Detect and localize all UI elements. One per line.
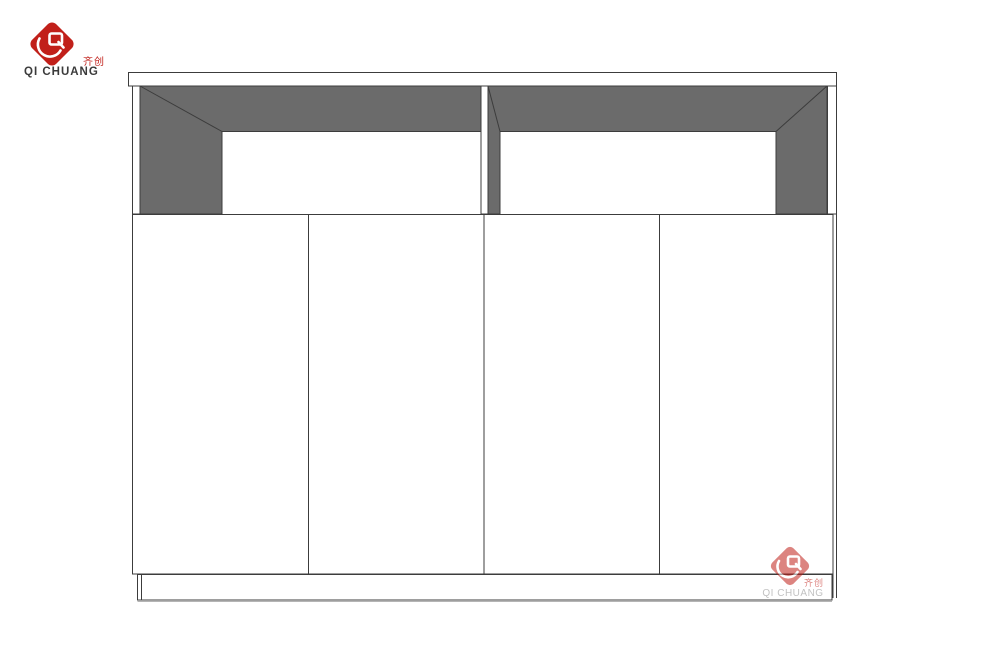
watermark-company-name-en: QI CHUANG (738, 588, 848, 599)
door-section (133, 215, 834, 575)
left-side-panel-edge (133, 86, 141, 214)
drawing-canvas: 齐创 QI CHUANG 齐创 QI CHUANG (0, 0, 1000, 667)
left-compartment-interior (140, 86, 481, 214)
plinth-base (138, 575, 833, 601)
right-compartment-interior (488, 86, 827, 214)
right-side-panel-edge (828, 86, 837, 214)
cabinet-top-panel (129, 73, 837, 87)
watermark-logo: 齐创 QI CHUANG (738, 534, 858, 608)
cabinet (129, 73, 837, 602)
center-divider-edge (481, 86, 488, 214)
